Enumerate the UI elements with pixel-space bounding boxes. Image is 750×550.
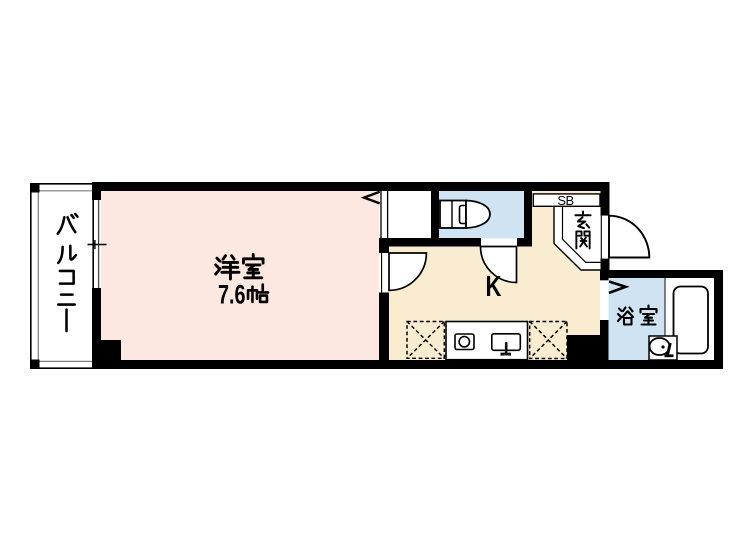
svg-text:7.6: 7.6 <box>218 280 246 310</box>
svg-text:SB: SB <box>557 193 573 208</box>
svg-text:K: K <box>486 271 502 303</box>
